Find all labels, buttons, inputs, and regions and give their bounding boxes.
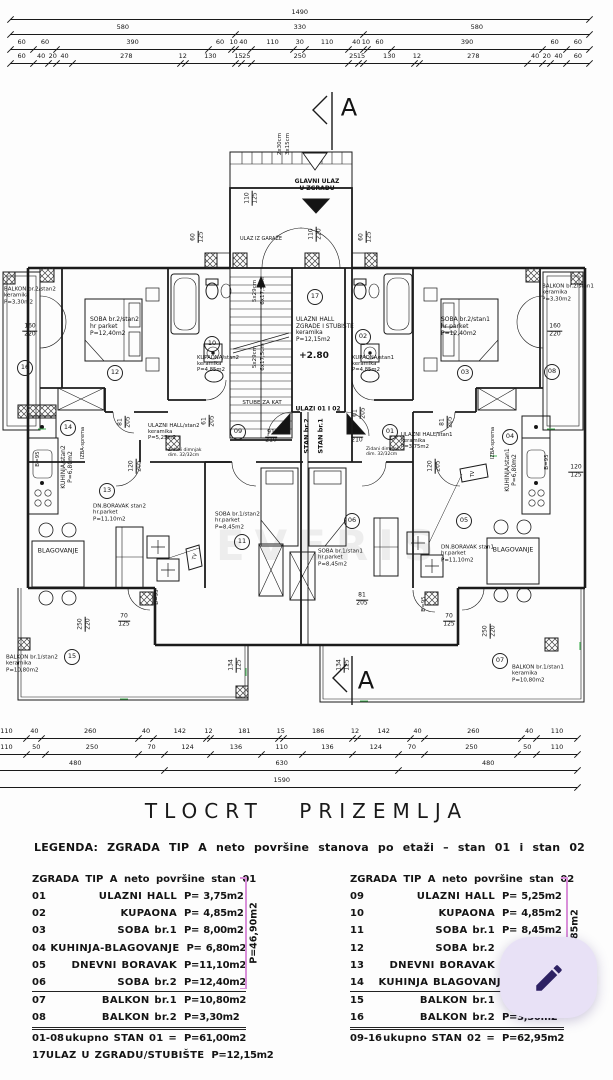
plan-label: B=95 [35, 451, 41, 466]
legend-row: 05DNEVNI BORAVAKP=11,10m2 [32, 957, 246, 974]
plan-label: 120205 [428, 458, 443, 473]
room-area: P=3,30m2 [184, 1012, 246, 1023]
room-code: 01 [32, 891, 68, 902]
plan-label: SOBA br.2/stan2hr parketP=12,40m2 [90, 317, 139, 337]
dimension-value: 40 [554, 52, 562, 60]
dimension-value: 124 [181, 743, 193, 751]
dimension-line [0, 738, 577, 739]
dimension-value: 70 [147, 743, 155, 751]
room-name: ukupno STAN 02 = [383, 1033, 502, 1044]
pencil-icon [532, 961, 566, 995]
room-code: 15 [350, 995, 386, 1006]
room-name: KUPAONA [386, 908, 502, 919]
legend-row: 04KUHINJA-BLAGOVANJEP= 6,80m2 [32, 940, 246, 957]
legend-row: 17ULAZ U ZGRADU/STUBIŠTEP=12,15m2 [32, 1047, 246, 1064]
dimension-value: 136 [321, 743, 333, 751]
dimension-line [10, 19, 590, 20]
legend-row: 08BALKON br.2P=3,30m2 [32, 1009, 246, 1026]
plan-label: IZBA-sprema [491, 427, 497, 459]
legend-row: 09ULAZNI HALLP= 5,25m2 [350, 888, 564, 905]
dimension-value: 12 [204, 727, 212, 735]
plan-label: KUHINJA/stan2P=6,80m2 [61, 445, 75, 489]
dimension-value: 40 [239, 38, 247, 46]
dimension-value: 1590 [273, 776, 290, 784]
room-code: 12 [350, 943, 386, 954]
dimension-value: 580 [471, 23, 483, 31]
dimension-value: 40 [30, 727, 38, 735]
dimension-value: 15 [277, 727, 285, 735]
dimension-value: 480 [69, 759, 81, 767]
dimension-value: 60 [574, 52, 582, 60]
dimension-value: 60 [550, 38, 558, 46]
plan-label: 110125 [245, 190, 260, 205]
room-number: 14 [60, 420, 76, 436]
room-number: 15 [64, 649, 80, 665]
plan-label: 160220 [22, 324, 37, 339]
plan-label: 120125 [568, 465, 583, 480]
dimension-value: 12 [351, 727, 359, 735]
plan-label: STAN br.2 [303, 418, 310, 453]
dimension-value: 60 [41, 38, 49, 46]
plan-label: 91210 [351, 430, 363, 445]
plan-label: ULAZNI HALLZGRADE I STUBIŠTEkeramikaP=12… [296, 317, 354, 343]
plan-label: ULAZNI HALL/stan2keramikaP=5,25m2 [148, 423, 200, 441]
room-name: ULAZNI HALL [68, 891, 184, 902]
drawing-title: TLOCRT PRIZEMLJA [0, 799, 613, 823]
plan-label: 81205 [356, 593, 368, 608]
dimension-value: 181 [238, 727, 250, 735]
plan-label: 6x17,5cm [260, 343, 266, 370]
dimension-line [10, 34, 590, 35]
room-number: 13 [99, 483, 115, 499]
legend-row: 10KUPAONAP= 4,85m2 [350, 905, 564, 922]
dimension-value: 390 [126, 38, 138, 46]
dimension-value: 20 [49, 52, 57, 60]
dimension-value: 50 [32, 743, 40, 751]
plan-label: 91210 [265, 430, 277, 445]
legend-table-stan01: ZGRADA TIP A neto površine stan 0101ULAZ… [32, 870, 246, 1064]
plan-label: KUPAONA/stan2keramikaP=4,85m2 [197, 355, 239, 373]
room-code: 03 [32, 925, 68, 936]
room-area: P= 6,80m2 [186, 943, 246, 954]
dimension-value: 40 [142, 727, 150, 735]
room-number: 17 [307, 289, 323, 305]
dimension-value: 250 [86, 743, 98, 751]
legend-row: 01-08ukupno STAN 01 =P=61,00m2 [32, 1027, 246, 1047]
plan-label: 60125 [191, 231, 206, 243]
plan-label: ULAZNI HALL/stan1keramikaP=3,75m2 [401, 432, 453, 450]
room-name: BALKON br.2 [386, 1012, 502, 1023]
room-area: P= 8,00m2 [184, 925, 246, 936]
legend-row: 07BALKON br.1P=10,80m2 [32, 991, 246, 1009]
dimension-value: 630 [276, 759, 288, 767]
dimension-line [10, 49, 590, 50]
plan-label: A [341, 94, 357, 121]
dimension-value: 130 [383, 52, 395, 60]
room-name: ULAZ U ZGRADU/STUBIŠTE [46, 1050, 211, 1061]
plan-label: A [358, 667, 374, 694]
room-name: DNEVNI BORAVAK [68, 960, 184, 971]
legend-row: 01ULAZNI HALLP= 3,75m2 [32, 888, 246, 905]
dimension-value: 250 [294, 52, 306, 60]
plan-label: SOBA br.2/stan1hr parketP=12,40m2 [441, 317, 490, 337]
dimension-value: 25 [242, 52, 250, 60]
room-number: 12 [107, 365, 123, 381]
dimension-value: 20 [543, 52, 551, 60]
plan-label: B=95 [544, 454, 550, 469]
room-name: BALKON br.1 [386, 995, 502, 1006]
room-number: 10 [204, 336, 220, 352]
room-area: P= 8,45m2 [502, 925, 564, 936]
room-number: 07 [492, 653, 508, 669]
plan-label: B=95 [154, 589, 160, 604]
dimension-value: 110 [0, 743, 12, 751]
legend-table-header: ZGRADA TIP A neto površine stan 01 [32, 870, 246, 888]
dimension-value: 40 [352, 38, 360, 46]
room-area: P=11,10m2 [184, 960, 246, 971]
room-code: 09-16 [350, 1033, 383, 1044]
plan-label: KUHINJA/stan1P=6,80m2 [505, 448, 519, 492]
dimension-value: 40 [60, 52, 68, 60]
plan-label: BALKON br.1/stan1keramikaP=10,80m2 [512, 665, 564, 684]
room-code: 08 [32, 1012, 68, 1023]
room-name: KUPAONA [68, 908, 184, 919]
dimension-value: 278 [120, 52, 132, 60]
plan-label: +2.80 [299, 351, 329, 361]
dimension-value: 70 [408, 743, 416, 751]
legend-row: 09-16ukupno STAN 02 =P=62,95m2 [350, 1027, 564, 1047]
plan-label: 134125 [229, 657, 244, 672]
dimension-value: 12 [179, 52, 187, 60]
dimension-line [0, 787, 577, 788]
room-area: P= 5,25m2 [502, 891, 564, 902]
dimension-value: 110 [551, 727, 563, 735]
room-name: ukupno STAN 01 = [65, 1033, 184, 1044]
dimension-value: 110 [276, 743, 288, 751]
plan-label: 81205 [440, 416, 455, 428]
plan-label: BALKON br.2/stan1keramikaP=3,30m2 [542, 284, 594, 303]
dimension-value: 110 [551, 743, 563, 751]
room-code: 09 [350, 891, 386, 902]
plan-label: 120205 [129, 458, 144, 473]
plan-label: 5x29cm [252, 280, 258, 302]
dimension-value: 110 [266, 38, 278, 46]
room-code: 04 [32, 943, 50, 954]
room-name: ULAZNI HALL [386, 891, 502, 902]
legend-heading: LEGENDA: ZGRADA TIP A neto površine stan… [34, 841, 585, 854]
dimension-line [0, 770, 577, 771]
legend-row: 06SOBA br.2P=12,40m2 [32, 974, 246, 991]
dimension-value: 10 [230, 38, 238, 46]
dimension-value: 124 [370, 743, 382, 751]
dimension-value: 136 [230, 743, 242, 751]
dimension-value: 40 [37, 52, 45, 60]
room-number: 03 [457, 365, 473, 381]
room-code: 10 [350, 908, 386, 919]
dimension-value: 40 [531, 52, 539, 60]
room-name: BALKON br.2 [68, 1012, 184, 1023]
room-number: 08 [544, 364, 560, 380]
plan-label: 5x29cm [252, 346, 258, 368]
plan-label: 70125 [443, 614, 455, 629]
legend-row: 02KUPAONAP= 4,85m2 [32, 905, 246, 922]
dimension-value: 60 [18, 52, 26, 60]
room-name: DNEVNI BORAVAK [386, 960, 502, 971]
dimension-value: 1490 [292, 8, 309, 16]
plan-label: 250220 [483, 623, 498, 638]
plan-label: 61205 [202, 415, 217, 427]
dimension-value: 330 [294, 23, 306, 31]
room-area: P=12,15m2 [211, 1050, 273, 1061]
room-number: 02 [355, 329, 371, 345]
room-name: SOBA br.2 [68, 977, 184, 988]
room-area: P=10,80m2 [184, 995, 246, 1006]
dimension-value: 40 [525, 727, 533, 735]
plan-label: 70125 [118, 614, 130, 629]
dimension-value: 60 [216, 38, 224, 46]
dimension-value: 142 [174, 727, 186, 735]
room-number: 01 [382, 424, 398, 440]
edit-fab-button[interactable] [500, 937, 597, 1018]
dimension-value: 60 [574, 38, 582, 46]
plan-label: IZBA-sprema [81, 427, 87, 459]
plan-label: 134125 [337, 657, 352, 672]
plan-label: 81205 [118, 416, 133, 428]
bracket-total-stan01: P=46,90m2 [249, 902, 260, 963]
plan-label: DN.BORAVAK stan1hr.parketP=11,10m2 [441, 545, 494, 564]
plan-label: BALKON br.1/stan2keramikaP=10,80m2 [6, 655, 58, 674]
room-code: 07 [32, 995, 68, 1006]
dimension-value: 186 [312, 727, 324, 735]
legend-table-header: ZGRADA TIP A neto površine stan 02 [350, 870, 564, 888]
dimension-value: 580 [117, 23, 129, 31]
plan-label: Zidani dimnjakdim. 32/32cm [168, 448, 201, 458]
plan-label: 60125 [359, 231, 374, 243]
plan-label: 2x30cm [277, 133, 283, 155]
plan-label: TV [471, 471, 477, 477]
room-area: P= 3,75m2 [184, 891, 246, 902]
plan-label: STAN br.1 [317, 418, 324, 453]
bracket-stan01 [245, 877, 247, 989]
dimension-value: 110 [0, 727, 12, 735]
room-number: 16 [17, 360, 33, 376]
plan-label: ULAZ IZ GARAŽE [240, 237, 282, 243]
plan-label: 61205 [353, 407, 368, 419]
dimension-value: 250 [465, 743, 477, 751]
dimension-line [0, 754, 577, 755]
plan-label: 3x15cm [285, 133, 291, 155]
plan-label: BLAGOVANJE [493, 546, 534, 553]
room-name: SOBA br.1 [68, 925, 184, 936]
room-code: 17 [32, 1050, 46, 1061]
room-code: 16 [350, 1012, 386, 1023]
plan-label: BLAGOVANJE [38, 547, 79, 554]
plan-label: ULAZI 01 I 02 [295, 407, 340, 414]
dimension-value: 30 [296, 38, 304, 46]
plan-label: STUBE ZA KAT [242, 400, 281, 406]
room-name: BALKON br.1 [68, 995, 184, 1006]
room-code: 14 [350, 977, 379, 988]
dimension-value: 110 [321, 38, 333, 46]
plan-label: GLAVNI ULAZU ZGRADU [295, 179, 340, 193]
dimension-value: 15 [357, 52, 365, 60]
room-code: 11 [350, 925, 386, 936]
room-name: KUHINJA-BLAGOVANJE [50, 943, 186, 954]
dimension-value: 390 [461, 38, 473, 46]
watermark: EVERIS [216, 522, 444, 570]
room-area: P=62,95m2 [502, 1033, 564, 1044]
plan-label: B=95 [421, 596, 427, 611]
floor-plan-page: 1490580330580606039060104011030110401060… [0, 0, 613, 1080]
plan-label: Zidani dimnjakdim. 32/32cm [366, 447, 399, 457]
plan-label: 110220 [309, 226, 324, 241]
legend-row: 03SOBA br.1P= 8,00m2 [32, 922, 246, 939]
room-name: SOBA br.1 [386, 925, 502, 936]
room-code: 13 [350, 960, 386, 971]
plan-label: KUPAONA/stan1keramikaP=4,85m2 [352, 355, 394, 373]
dimension-value: 10 [362, 38, 370, 46]
room-area: P=12,40m2 [184, 977, 246, 988]
dimension-value: 142 [377, 727, 389, 735]
room-code: 05 [32, 960, 68, 971]
dimension-value: 260 [84, 727, 96, 735]
dimension-line [10, 63, 590, 64]
dimension-value: 130 [204, 52, 216, 60]
dimension-value: 12 [413, 52, 421, 60]
room-number: 04 [502, 429, 518, 445]
dimension-value: 50 [523, 743, 531, 751]
plan-label: 160220 [547, 324, 562, 339]
room-name: KUHINJA BLAGOVANJE [379, 977, 515, 988]
dimension-value: 278 [467, 52, 479, 60]
room-area: P= 4,85m2 [184, 908, 246, 919]
plan-label: 250220 [78, 616, 93, 631]
room-number: 09 [230, 424, 246, 440]
room-area: P=61,00m2 [184, 1033, 246, 1044]
room-code: 01-08 [32, 1033, 65, 1044]
plan-label: DN.BORAVAK stan2hr.parketP=11,10m2 [93, 504, 146, 523]
dimension-value: 260 [467, 727, 479, 735]
dimension-value: 60 [375, 38, 383, 46]
room-area: P= 4,85m2 [502, 908, 564, 919]
plan-label: BALKON br.2/stan2keramikaP=3,30m2 [4, 287, 56, 306]
dimension-value: 40 [413, 727, 421, 735]
room-name: SOBA br.2 [386, 943, 502, 954]
room-number: 05 [456, 513, 472, 529]
dimension-value: 60 [18, 38, 26, 46]
room-code: 06 [32, 977, 68, 988]
room-code: 02 [32, 908, 68, 919]
dimension-value: 480 [482, 759, 494, 767]
plan-label: 6x17,5cm [260, 277, 266, 304]
